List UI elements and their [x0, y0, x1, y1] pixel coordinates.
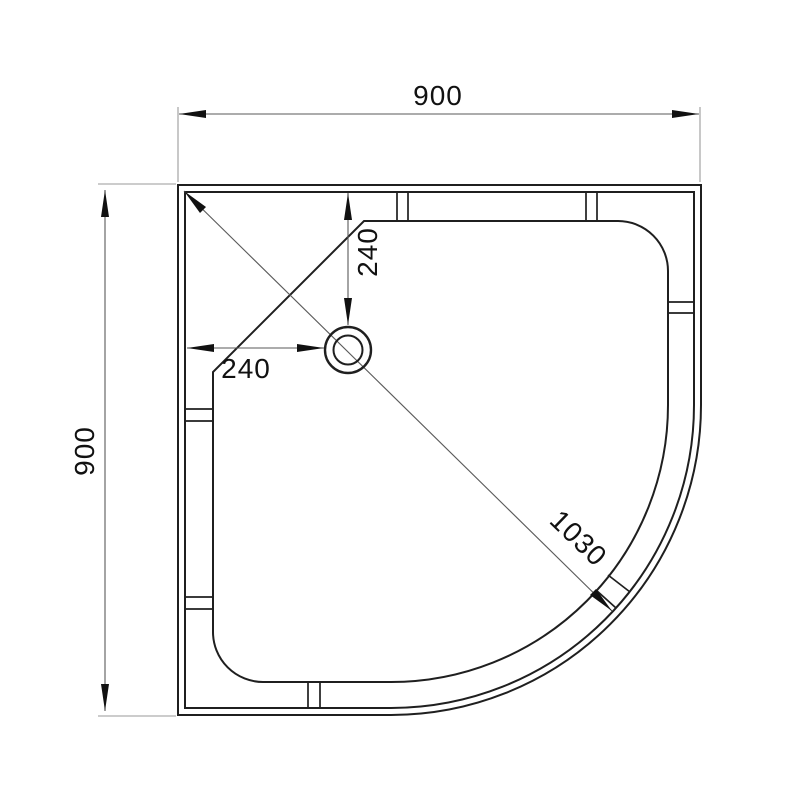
- dim-width-top: 900: [178, 80, 700, 182]
- depth-arrowhead-bottom: [101, 684, 109, 711]
- dim-diagonal-label: 1030: [544, 504, 613, 572]
- dim-depth-label: 900: [69, 426, 100, 476]
- diagonal-arrowhead-start: [184, 191, 206, 213]
- tray-outer-edge: [178, 185, 701, 715]
- vertical-offset-arrowhead-top: [344, 193, 352, 220]
- shower-tray-technical-drawing: 1030 900 900: [0, 0, 800, 800]
- vertical-offset-arrowhead-bottom: [344, 298, 352, 325]
- horizontal-offset-arrowhead-right: [297, 344, 324, 352]
- width-arrowhead-left: [179, 110, 206, 118]
- depth-arrowhead-top: [101, 190, 109, 217]
- dim-horizontal-offset-label: 240: [221, 353, 271, 384]
- dim-drain-offset-horizontal: 240: [187, 344, 324, 384]
- drain-outer-circle: [325, 327, 371, 373]
- dim-vertical-offset-label: 240: [352, 227, 383, 277]
- dim-drain-offset-vertical: 240: [344, 193, 383, 325]
- rim-notch-left-upper: [185, 409, 213, 421]
- drain: [325, 327, 371, 373]
- rim-notch-top-right: [586, 192, 597, 221]
- dim-diagonal: 1030: [184, 191, 613, 611]
- tray-basin-edge: [213, 221, 668, 682]
- drain-inner-circle: [334, 336, 363, 365]
- dim-depth-left: 900: [69, 184, 176, 716]
- tray-rim-inner-edge: [185, 192, 694, 708]
- rim-notches: [185, 192, 694, 708]
- tray-outline: [178, 185, 701, 715]
- rim-notch-right: [668, 302, 694, 313]
- rim-notch-top-left: [397, 192, 408, 221]
- diagonal-arrowhead-end: [590, 589, 612, 611]
- diagonal-dimension-line: [184, 191, 612, 611]
- rim-notch-bottom: [308, 682, 320, 708]
- width-arrowhead-right: [672, 110, 699, 118]
- horizontal-offset-arrowhead-left: [187, 344, 214, 352]
- drawing-canvas: 1030 900 900: [0, 0, 800, 800]
- dim-width-label: 900: [413, 80, 463, 111]
- rim-notch-left-lower: [185, 597, 213, 609]
- notch-line: [608, 575, 630, 592]
